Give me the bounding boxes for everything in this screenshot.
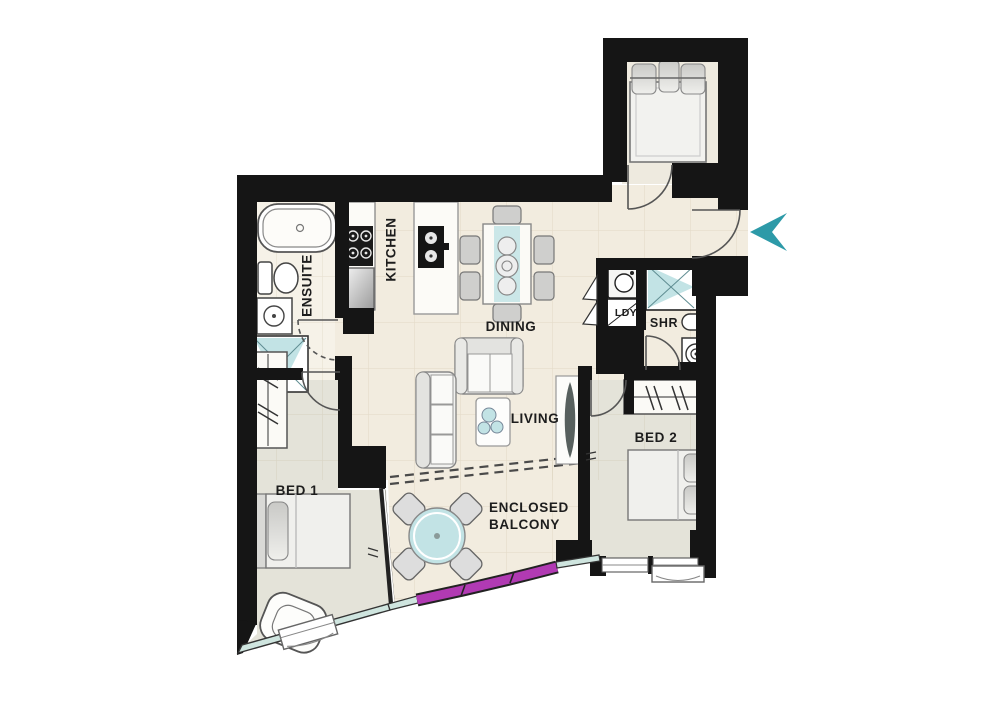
wardrobe-icon-bed2 — [624, 380, 702, 414]
sofa-icon-three-seat — [416, 372, 456, 468]
bay-window-bed2 — [652, 566, 704, 582]
room-label-ensuite: ENSUITE — [299, 246, 316, 326]
bed-icon-bed1 — [254, 494, 350, 568]
entry-arrow-icon — [750, 213, 787, 251]
bed-icon-entry-room — [630, 60, 706, 162]
cooktop-icon — [346, 226, 373, 266]
room-label-balcony: ENCLOSED BALCONY — [489, 499, 581, 533]
floor-plan-graphic — [0, 0, 1000, 718]
room-label-kitchen: KITCHEN — [383, 205, 400, 295]
floor-plan: ENSUITE KITCHEN DINING LIVING BED 1 BED … — [0, 0, 1000, 718]
room-label-laundry: LDY — [606, 305, 646, 322]
washer-icon — [608, 266, 640, 298]
room-label-shower: SHR — [644, 315, 684, 332]
room-label-bed1: BED 1 — [252, 482, 342, 499]
shower-icon-shr — [646, 264, 698, 310]
bed-icon-bed2 — [628, 450, 702, 520]
room-label-living: LIVING — [490, 410, 580, 427]
toilet-icon — [258, 262, 298, 294]
basin-icon — [257, 298, 292, 334]
room-label-bed2: BED 2 — [611, 429, 701, 446]
bathtub-icon — [258, 204, 336, 252]
room-label-dining: DINING — [466, 318, 556, 335]
sofa-icon-two-seat — [455, 338, 523, 394]
